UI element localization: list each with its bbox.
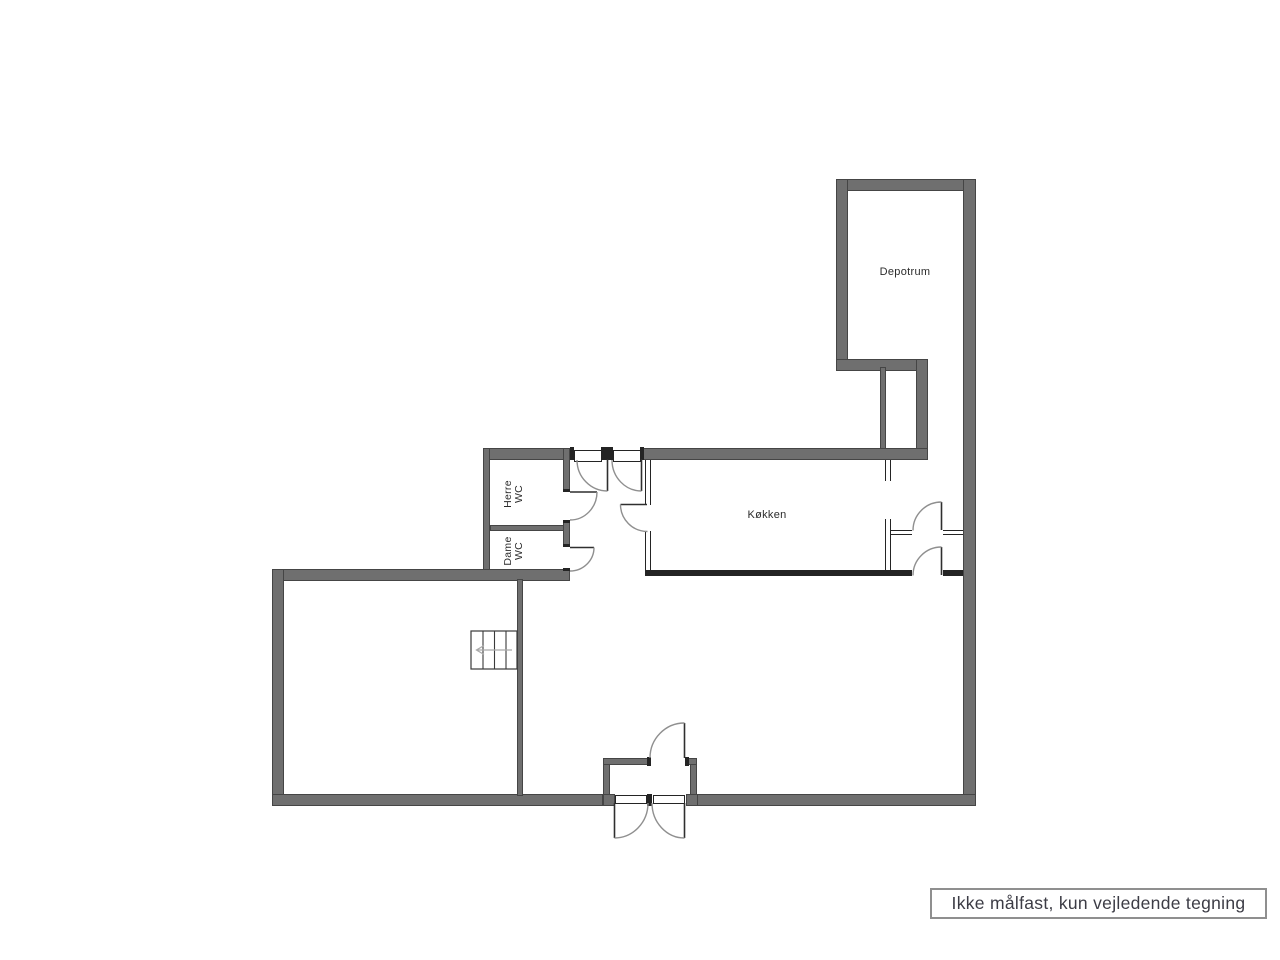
jamb-vestibule-bottom-mid	[647, 794, 652, 806]
wall-bottom-left	[272, 794, 603, 806]
wall-wc-left	[483, 448, 490, 581]
wall-band-top-right	[642, 448, 928, 460]
door-arc	[650, 723, 685, 758]
room-label-herre-wc: Herre WC	[503, 480, 525, 508]
wall-kitchen-right-b	[885, 519, 891, 571]
wall-room-divider	[517, 579, 523, 796]
wall-vestibule-bottom-a	[603, 794, 615, 806]
door-panel-hall-left	[574, 450, 602, 462]
door-panel-hall-right	[613, 450, 641, 462]
door-arc	[913, 547, 942, 576]
floor-plan: Depotrum Køkken Herre WC Dame WC	[0, 0, 1280, 960]
disclaimer-box: Ikke målfast, kun vejledende tegning	[930, 888, 1267, 919]
stairs-outline	[471, 631, 517, 669]
room-label-kitchen: Køkken	[747, 509, 786, 521]
stairs-icon	[471, 631, 517, 669]
stairs-treads	[483, 631, 506, 669]
wall-corridor-left	[916, 359, 928, 460]
wall-kitchen-left-b	[645, 531, 651, 571]
wall-right-rooms-divider-b	[943, 530, 963, 535]
plan-symbols	[0, 0, 1280, 960]
jamb-herre-wc-bottom	[563, 520, 570, 523]
disclaimer-text: Ikke målfast, kun vejledende tegning	[952, 893, 1246, 914]
jamb-hall-mullion	[601, 447, 613, 460]
wall-wc-right-b	[563, 520, 570, 547]
jamb-vestibule-top-left	[647, 757, 651, 766]
door-arc	[652, 803, 685, 838]
wall-vestibule-bottom-b	[686, 794, 698, 806]
jamb-dame-wc-bottom	[563, 568, 570, 571]
wall-right-rooms-divider-a	[891, 530, 912, 535]
wall-shaft-left	[880, 367, 886, 460]
wall-band-bottom-a	[645, 570, 912, 576]
wall-left-outer	[272, 569, 284, 806]
wall-depotrum-left	[836, 179, 848, 371]
wall-right-outer	[963, 179, 976, 806]
wall-wc-divider	[490, 525, 566, 531]
door-arc	[913, 502, 942, 531]
wall-depotrum-top	[836, 179, 976, 191]
door-panel-entrance-left	[615, 795, 647, 804]
door-arc	[570, 548, 594, 572]
jamb-vestibule-top-right	[685, 757, 689, 766]
door-arc	[621, 505, 648, 532]
jamb-herre-wc-top	[563, 489, 570, 492]
wall-band-bottom-b	[943, 570, 963, 576]
door-arc	[570, 492, 597, 520]
wall-kitchen-left-a	[645, 460, 651, 505]
wall-band-top-left	[483, 448, 573, 460]
room-label-herre-wc-line2: WC	[514, 480, 525, 508]
door-panel-entrance-right	[653, 795, 685, 804]
wall-west-top	[272, 569, 570, 581]
door-arc	[612, 460, 642, 491]
door-arc	[577, 460, 608, 491]
stairs-arrowhead	[477, 646, 485, 655]
wall-vestibule-top-a	[603, 758, 650, 765]
wall-bottom-right	[697, 794, 976, 806]
room-label-dame-wc: Dame WC	[503, 536, 525, 565]
jamb-dame-wc-top	[563, 544, 570, 547]
room-label-depotrum: Depotrum	[880, 266, 931, 278]
room-label-dame-wc-line2: WC	[514, 536, 525, 565]
wall-kitchen-right-a	[885, 460, 891, 481]
wall-wc-right-a	[563, 448, 570, 492]
door-arc	[615, 803, 649, 838]
